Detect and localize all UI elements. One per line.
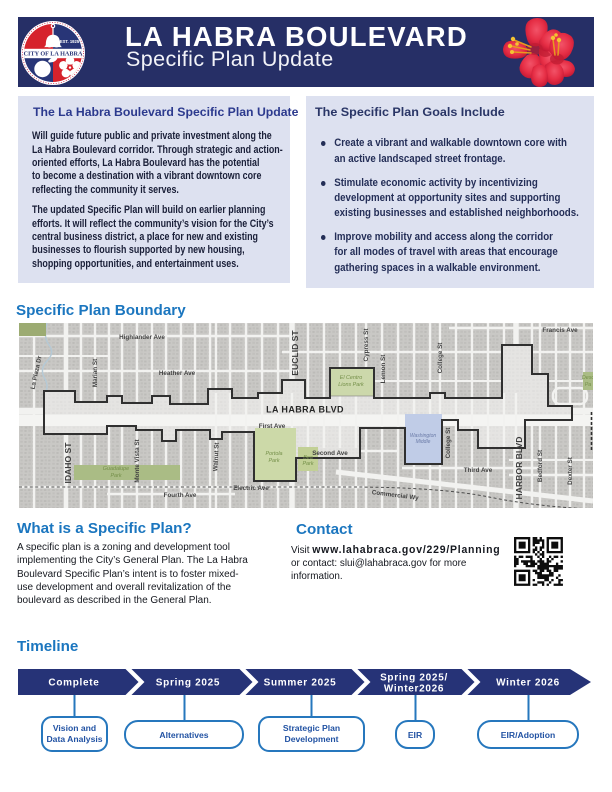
svg-text:Fourth Ave: Fourth Ave [164, 492, 197, 499]
svg-text:Guadalupe: Guadalupe [103, 466, 129, 472]
svg-text:IDAHO ST: IDAHO ST [63, 442, 73, 484]
svg-text:Francis Ave: Francis Ave [542, 327, 578, 334]
svg-text:Highlander Ave: Highlander Ave [119, 334, 165, 341]
svg-text:EIR/Adoption: EIR/Adoption [501, 730, 555, 740]
svg-text:Winter 2026: Winter 2026 [496, 678, 560, 689]
svg-text:Pa: Pa [585, 382, 592, 388]
svg-text:HARBOR BLVD: HARBOR BLVD [514, 437, 524, 500]
svg-text:College St: College St [445, 427, 452, 459]
svg-text:Bedford St: Bedford St [537, 449, 544, 482]
svg-text:EUCLID ST: EUCLID ST [290, 330, 300, 376]
svg-text:Complete: Complete [48, 678, 99, 689]
svg-text:Data Analysis: Data Analysis [46, 734, 102, 744]
svg-text:Second Ave: Second Ave [312, 450, 348, 457]
svg-text:Spring 2025: Spring 2025 [156, 678, 220, 689]
svg-text:Lions Park: Lions Park [338, 382, 364, 388]
svg-text:First Ave: First Ave [259, 423, 286, 430]
svg-text:Third Ave: Third Ave [464, 467, 493, 474]
svg-text:Summer 2025: Summer 2025 [264, 678, 337, 689]
svg-text:Monte Vista St: Monte Vista St [134, 438, 141, 482]
svg-text:Vision and: Vision and [53, 723, 96, 733]
svg-text:Electric Ave: Electric Ave [233, 485, 269, 492]
svg-text:EIR: EIR [408, 730, 423, 740]
svg-text:Park: Park [110, 473, 121, 479]
svg-text:Lemon St: Lemon St [380, 354, 387, 384]
svg-text:Winter2026: Winter2026 [384, 684, 444, 695]
svg-text:LA HABRA BLVD: LA HABRA BLVD [266, 405, 344, 415]
svg-text:Middle: Middle [416, 439, 431, 445]
svg-text:Cypress St: Cypress St [363, 328, 370, 362]
svg-text:Portola: Portola [265, 451, 282, 457]
svg-text:Development: Development [285, 734, 339, 744]
svg-text:Park: Park [302, 461, 313, 467]
svg-text:Dexter St: Dexter St [567, 456, 574, 485]
svg-text:Alternatives: Alternatives [159, 730, 208, 740]
svg-text:EST. 1925: EST. 1925 [60, 39, 80, 44]
svg-text:Spring 2025/: Spring 2025/ [380, 673, 448, 684]
svg-text:CITY OF LA HABRA: CITY OF LA HABRA [24, 51, 83, 58]
svg-text:El Centro: El Centro [340, 375, 362, 381]
svg-text:College St: College St [437, 342, 444, 374]
svg-text:Desc: Desc [582, 375, 593, 381]
svg-text:Strategic Plan: Strategic Plan [283, 723, 340, 733]
svg-text:Park: Park [268, 458, 279, 464]
svg-text:Marian St: Marian St [92, 358, 99, 387]
svg-text:Heather Ave: Heather Ave [159, 370, 196, 377]
